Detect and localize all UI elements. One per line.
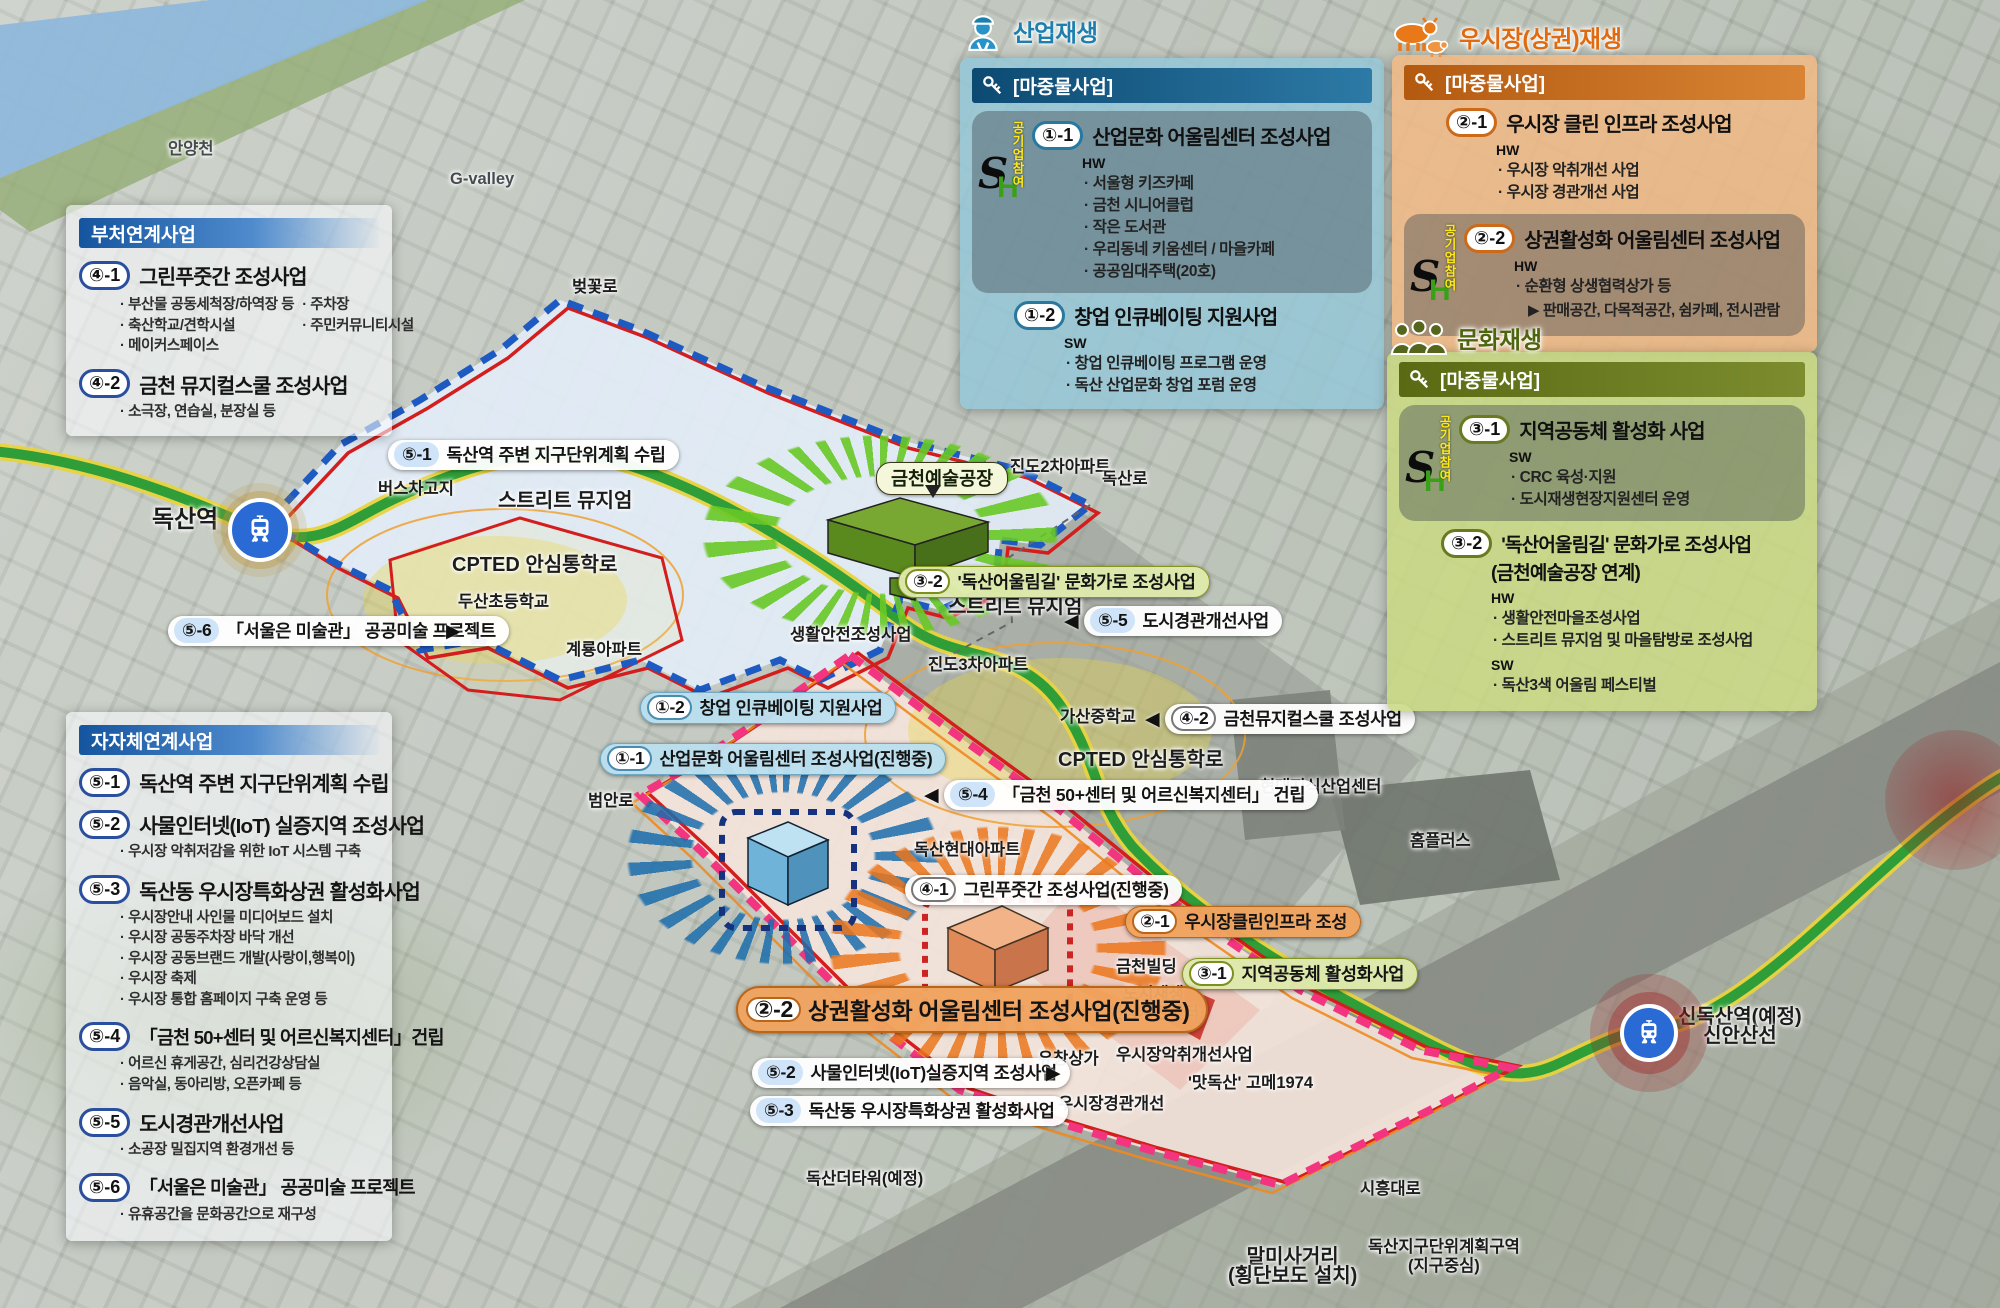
map-label-odor-project: 우시장악취개선사업 <box>1116 1046 1253 1065</box>
pill-badge: ⑤-4 <box>950 782 995 807</box>
pill-text: 그린푸줏간 조성사업(진행중) <box>963 877 1168 902</box>
panel-header: 자자체연계사업 <box>79 725 379 755</box>
pointer-left-icon: ◀ <box>1145 708 1160 731</box>
pill-badge: ④-2 <box>1171 706 1216 731</box>
bullet-list: 서울형 키즈카페 금천 시니어클럽 작은 도서관 우리동네 키움센터 / 마을카… <box>1084 173 1362 283</box>
bullet-list: 독산3색 어울림 페스티벌 <box>1493 675 1817 697</box>
map-label-road: 시흥대로 <box>1360 1180 1421 1199</box>
map-label-apartment-2: 진도2차아파트 <box>1010 458 1110 477</box>
local-gov-projects-panel: 자자체연계사업 ⑤-1독산역 주변 지구단위계획 수립 ⑤-2사물인터넷(IoT… <box>66 712 392 1241</box>
bullet: 우시장 통합 홈페이지 구축 운영 등 <box>120 990 392 1011</box>
sh-participation-logo: S H 공기업참여 <box>1409 413 1455 511</box>
project-badge: ①-1 <box>1032 121 1083 150</box>
sh-participation-label: 공기업참여 <box>1435 415 1454 483</box>
map-label-sindoksan-station: 신독산역(예정)신안산선 <box>1678 1008 1802 1046</box>
bullet-list: 우시장 악취개선 사업 우시장 경관개선 사업 <box>1498 160 1817 204</box>
bullet: 도시재생현장지원센터 운영 <box>1511 489 1795 511</box>
label-line1: 독산지구단위계획구역 <box>1368 1238 1520 1256</box>
seed-project-label: [마중물사업] <box>1440 366 1540 393</box>
section-title: 산업재생 <box>1013 14 1097 48</box>
section-title: 우시장(상권)재생 <box>1459 20 1622 54</box>
bullet: 우리동네 키움센터 / 마을카페 <box>1084 239 1362 261</box>
project-item: ⑤-1독산역 주변 지구단위계획 수립 <box>79 767 379 797</box>
map-pill-5-1: ⑤-1독산역 주변 지구단위계획 수립 <box>388 440 679 470</box>
map-label-crossing: 말미사거리(횡단보도 설치) <box>1228 1248 1357 1286</box>
project-item: ①-2 창업 인큐베이팅 지원사업 <box>1014 301 1384 330</box>
seed-project-bar: [마중물사업] <box>1404 65 1805 100</box>
project-badge: ⑤-2 <box>79 810 130 839</box>
bullet-list: 어르신 휴게공간, 심리건강상담실 음악실, 동아리방, 오픈카페 등 <box>120 1054 392 1095</box>
type-label: HW <box>1082 155 1362 171</box>
seed-project-label: [마중물사업] <box>1445 69 1545 96</box>
type-label: HW <box>1496 142 1817 158</box>
project-item: ⑤-3독산동 우시장특화상권 활성화사업 <box>79 875 379 905</box>
map-label-apartment-4: 독산현대아파트 <box>914 841 1020 860</box>
bullet: 창업 인큐베이팅 프로그램 운영 <box>1066 353 1384 375</box>
type-label: SW <box>1491 657 1817 673</box>
map-label-gvalley: G-valley <box>450 170 514 189</box>
pointer-left-icon: ◀ <box>1064 610 1079 633</box>
pill-text: 우시장클린인프라 조성 <box>1184 909 1347 934</box>
project-item: ④-1 그린푸줏간 조성사업 <box>79 260 379 290</box>
bullet-list: CRC 육성·지원 도시재생현장지원센터 운영 <box>1511 467 1795 511</box>
urban-regeneration-map: 안양천 G-valley 벚꽃로 버스차고지 스트리트 뮤지엄 CPTED 안심… <box>0 0 2000 1308</box>
train-icon <box>1634 1018 1664 1048</box>
project-item: ④-2 금천 뮤지컬스쿨 조성사업 <box>79 369 379 399</box>
sh-participation-label: 공기업참여 <box>1008 121 1027 189</box>
project-badge: ②-2 <box>1464 224 1515 253</box>
type-label: HW <box>1514 258 1795 274</box>
pill-text: 지역공동체 활성화사업 <box>1241 961 1404 986</box>
map-label-gourmet: '맛독산' 고메1974 <box>1188 1074 1313 1093</box>
label-line2: (횡단보도 설치) <box>1228 1267 1357 1286</box>
pill-text: 사물인터넷(IoT)실증지역 조성사업 <box>810 1060 1056 1085</box>
project-title: 창업 인큐베이팅 지원사업 <box>1074 301 1277 330</box>
industry-section-header: 산업재생 <box>962 10 1097 52</box>
project-title-line2: (금천예술공장 연계) <box>1491 558 1817 585</box>
key-icon <box>1409 369 1431 391</box>
pill-text: 창업 인큐베이팅 지원사업 <box>699 695 882 720</box>
map-label-building: 금천빌딩 <box>1116 958 1177 977</box>
bullet-list: 우시장 악취저감을 위한 IoT 시스템 구축 <box>120 842 392 863</box>
bullet-list: 소공장 밀집지역 환경개선 등 <box>120 1140 392 1161</box>
project-title: 독산역 주변 지구단위계획 수립 <box>139 767 388 797</box>
map-pill-1-2: ①-2창업 인큐베이팅 지원사업 <box>640 692 896 724</box>
map-label-school-1: 두산초등학교 <box>458 593 549 612</box>
project-title: '독산어울림길' 문화가로 조성사업 <box>1501 530 1751 557</box>
map-label-landscape: 우시장경관개선 <box>1058 1095 1164 1114</box>
type-label: HW <box>1491 590 1817 606</box>
industry-center-building <box>748 822 828 905</box>
project-item: ①-1 산업문화 어울림센터 조성사업 <box>1032 121 1362 150</box>
map-label-school-2: 가산중학교 <box>1060 708 1136 727</box>
bullet: CRC 육성·지원 <box>1511 467 1795 489</box>
map-pill-2-1: ②-1우시장클린인프라 조성 <box>1125 906 1361 938</box>
worker-icon <box>962 10 1004 52</box>
map-label-doksan-station: 독산역 <box>152 510 218 529</box>
bullet: 소공장 밀집지역 환경개선 등 <box>120 1140 392 1161</box>
project-title: 독산동 우시장특화상권 활성화사업 <box>139 875 420 905</box>
project-item: ⑤-6「서울은 미술관」 공공미술 프로젝트 <box>79 1173 379 1202</box>
map-label-road: 범안로 <box>588 792 634 811</box>
project-badge: ③-1 <box>1459 415 1510 444</box>
project-title: 상권활성화 어울림센터 조성사업 <box>1524 224 1780 253</box>
doksan-station-marker <box>228 498 292 562</box>
project-box: S H 공기업참여 ②-2 상권활성화 어울림센터 조성사업 HW 순환형 상생… <box>1404 214 1805 336</box>
map-label-homeplus: 홈플러스 <box>1410 832 1471 851</box>
panel-header: 부처연계사업 <box>79 218 379 248</box>
pill-badge: ②-2 <box>746 997 801 1022</box>
bullet: 음악실, 동아리방, 오픈카페 등 <box>120 1075 392 1096</box>
seed-project-bar: [마중물사업] <box>1399 362 1805 397</box>
bullet: 부산물 공동세척장/하역장 등 <box>120 295 294 316</box>
community-icon <box>1390 320 1448 356</box>
project-box: S H 공기업참여 ③-1 지역공동체 활성화 사업 SW CRC 육성·지원 … <box>1399 405 1805 521</box>
label-line2: 신안산선 <box>1678 1027 1802 1046</box>
sindoksan-station-marker <box>1620 1004 1678 1062</box>
project-badge: ②-1 <box>1446 108 1497 137</box>
map-label-cpted-1: CPTED 안심통학로 <box>452 556 617 575</box>
bullet: 어르신 휴게공간, 심리건강상담실 <box>120 1054 392 1075</box>
pointer-right-icon: ▶ <box>446 620 461 643</box>
project-title: 「서울은 미술관」 공공미술 프로젝트 <box>139 1174 415 1200</box>
bullet: 소극장, 연습실, 분장실 등 <box>120 402 392 423</box>
seed-project-label: [마중물사업] <box>1013 72 1113 99</box>
pill-text: 도시경관개선사업 <box>1142 608 1268 633</box>
map-pill-4-1: ④-1그린푸줏간 조성사업(진행중) <box>905 875 1182 905</box>
map-pill-3-1: ③-1지역공동체 활성화사업 <box>1182 958 1418 990</box>
pill-badge: ②-1 <box>1132 909 1177 934</box>
project-title: 산업문화 어울림센터 조성사업 <box>1092 121 1330 150</box>
pill-text: 「금천 50+센터 및 어르신복지센터」 건립 <box>1002 782 1305 807</box>
project-badge: ⑤-6 <box>79 1173 130 1202</box>
project-badge: ③-2 <box>1441 529 1492 558</box>
market-panel: [마중물사업] ②-1 우시장 클린 인프라 조성사업 HW 우시장 악취개선 … <box>1392 55 1817 352</box>
map-label-road: 독산로 <box>1102 470 1148 489</box>
bullet: 유휴공간을 문화공간으로 재구성 <box>120 1205 392 1226</box>
map-pill-5-2: ⑤-2사물인터넷(IoT)실증지역 조성사업 <box>752 1058 1070 1088</box>
bullet-list: 주차장 주민커뮤니티시설 <box>302 295 414 357</box>
project-title: 「금천 50+센터 및 어르신복지센터」건립 <box>139 1024 443 1050</box>
bullet: 독산3색 어울림 페스티벌 <box>1493 675 1817 697</box>
pill-badge: ①-1 <box>607 746 652 771</box>
map-pill-2-2: ②-2상권활성화 어울림센터 조성사업(진행중) <box>736 986 1208 1033</box>
bullet: 메이커스페이스 <box>120 336 294 357</box>
sh-participation-logo: S H 공기업참여 <box>1414 222 1460 326</box>
project-item: ③-2 '독산어울림길' 문화가로 조성사업 <box>1441 529 1817 558</box>
map-pill-5-4: ⑤-4「금천 50+센터 및 어르신복지센터」 건립 <box>944 780 1318 810</box>
bullet: 우시장 축제 <box>120 969 392 990</box>
pill-badge: ③-1 <box>1189 961 1234 986</box>
map-label-tower: 독산더타워(예정) <box>806 1170 923 1189</box>
project-badge: ⑤-3 <box>79 875 130 904</box>
market-center-building <box>948 906 1048 992</box>
market-section-header: 우시장(상권)재생 <box>1388 16 1622 58</box>
project-badge: ⑤-4 <box>79 1022 130 1051</box>
project-item: ③-1 지역공동체 활성화 사업 <box>1459 415 1795 444</box>
project-title: 금천 뮤지컬스쿨 조성사업 <box>139 369 347 399</box>
project-title: 지역공동체 활성화 사업 <box>1519 415 1705 444</box>
pill-badge: ⑤-5 <box>1090 608 1135 633</box>
seed-project-bar: [마중물사업] <box>972 68 1372 103</box>
key-icon <box>1414 72 1436 94</box>
bullet-list: 우시장안내 사인물 미디어보드 설치 우시장 공동주차장 바닥 개선 우시장 공… <box>120 908 392 1011</box>
project-title: 도시경관개선사업 <box>139 1107 283 1137</box>
map-label-river: 안양천 <box>168 140 214 159</box>
industry-panel: [마중물사업] S H 공기업참여 ①-1 산업문화 어울림센터 조성사업 HW… <box>960 58 1384 409</box>
map-label-safety-project: 생활안전조성사업 <box>790 626 911 645</box>
project-item: ⑤-2사물인터넷(IoT) 실증지역 조성사업 <box>79 809 379 839</box>
map-pill-4-2: ④-2금천뮤지컬스쿨 조성사업 <box>1165 704 1415 734</box>
pill-badge: ⑤-3 <box>756 1098 801 1123</box>
pill-text: 금천뮤지컬스쿨 조성사업 <box>1223 706 1401 731</box>
sh-participation-label: 공기업참여 <box>1440 224 1459 292</box>
sh-participation-logo: S H 공기업참여 <box>982 119 1028 283</box>
pointer-left-icon: ◀ <box>924 784 939 807</box>
bullet: 주민커뮤니티시설 <box>302 316 414 337</box>
pill-badge: ③-2 <box>905 569 950 594</box>
project-item: ⑤-4「금천 50+센터 및 어르신복지센터」건립 <box>79 1022 379 1051</box>
bullet: 우시장안내 사인물 미디어보드 설치 <box>120 908 392 929</box>
pill-text: 상권활성화 어울림센터 조성사업(진행중) <box>808 992 1190 1026</box>
train-icon <box>243 513 277 547</box>
map-pill-3-2: ③-2'독산어울림길' 문화가로 조성사업 <box>898 566 1210 598</box>
project-badge: ④-1 <box>79 261 130 290</box>
map-pill-5-5: ⑤-5도시경관개선사업 <box>1084 606 1282 636</box>
project-badge: ⑤-5 <box>79 1108 130 1137</box>
pill-badge: ④-1 <box>911 877 956 902</box>
bullet: 우시장 악취개선 사업 <box>1498 160 1817 182</box>
bullet: 서울형 키즈카페 <box>1084 173 1362 195</box>
map-label-road: 벚꽃로 <box>572 278 618 297</box>
bullet: 금천 시니어클럽 <box>1084 195 1362 217</box>
map-label-district-unit: 독산지구단위계획구역(지구중심) <box>1368 1238 1520 1276</box>
bullet: 우시장 악취저감을 위한 IoT 시스템 구축 <box>120 842 392 863</box>
pill-text: 산업문화 어울림센터 조성사업(진행중) <box>659 746 932 771</box>
map-pill-1-1: ①-1산업문화 어울림센터 조성사업(진행중) <box>600 743 946 775</box>
bullet-list: 창업 인큐베이팅 프로그램 운영 독산 산업문화 창업 포럼 운영 <box>1066 353 1384 397</box>
note: ▶ 판매공간, 다목적공간, 쉼카페, 전시관람 <box>1528 299 1795 320</box>
type-label: SW <box>1509 449 1795 465</box>
bullet: 생활안전마을조성사업 <box>1493 608 1817 630</box>
project-title: 그린푸줏간 조성사업 <box>139 260 306 290</box>
section-title: 문화재생 <box>1457 321 1541 355</box>
ministry-projects-panel: 부처연계사업 ④-1 그린푸줏간 조성사업 부산물 공동세척장/하역장 등 축산… <box>66 205 392 436</box>
arts-factory-bubble: 금천예술공장 <box>876 462 1008 495</box>
bullet-list: 생활안전마을조성사업 스트리트 뮤지엄 및 마을탐방로 조성사업 <box>1493 608 1817 652</box>
bullet: 스트리트 뮤지엄 및 마을탐방로 조성사업 <box>1493 630 1817 652</box>
culture-panel: [마중물사업] S H 공기업참여 ③-1 지역공동체 활성화 사업 SW CR… <box>1387 352 1817 711</box>
project-badge: ①-2 <box>1014 301 1065 330</box>
bullet: 축산학교/견학시설 <box>120 316 294 337</box>
bullet: 작은 도서관 <box>1084 217 1362 239</box>
project-item: ②-1 우시장 클린 인프라 조성사업 <box>1446 108 1817 137</box>
project-title: 우시장 클린 인프라 조성사업 <box>1506 108 1731 137</box>
project-box: S H 공기업참여 ①-1 산업문화 어울림센터 조성사업 HW 서울형 키즈카… <box>972 111 1372 293</box>
pill-text: 독산역 주변 지구단위계획 수립 <box>446 442 665 467</box>
bullet-list: 유휴공간을 문화공간으로 재구성 <box>120 1205 392 1226</box>
map-label-street-museum-1: 스트리트 뮤지엄 <box>498 492 632 511</box>
project-badge: ⑤-1 <box>79 768 130 797</box>
bullet: 우시장 경관개선 사업 <box>1498 182 1817 204</box>
bullet-list: 순환형 상생협력상가 등 <box>1516 276 1795 298</box>
pill-text: 독산동 우시장특화상권 활성화사업 <box>808 1098 1054 1123</box>
map-label-apartment-1: 계룡아파트 <box>566 641 642 660</box>
bullet: 우시장 공동브랜드 개발(사랑이,행복이) <box>120 949 392 970</box>
pill-badge: ⑤-6 <box>174 618 219 643</box>
label-line2: (지구중심) <box>1368 1257 1520 1276</box>
project-item: ⑤-5도시경관개선사업 <box>79 1107 379 1137</box>
pill-badge: ⑤-1 <box>394 442 439 467</box>
map-label-street-museum-2: 스트리트 뮤지엄 <box>948 598 1082 617</box>
pill-badge: ⑤-2 <box>758 1060 803 1085</box>
bullet: 순환형 상생협력상가 등 <box>1516 276 1795 298</box>
culture-section-header: 문화재생 <box>1390 320 1541 356</box>
bullet: 공공임대주택(20호) <box>1084 261 1362 283</box>
livestock-icon <box>1388 16 1450 58</box>
bullet-list: 부산물 공동세척장/하역장 등 축산학교/견학시설 메이커스페이스 <box>120 295 294 357</box>
pill-text: '독산어울림길' 문화가로 조성사업 <box>957 569 1195 594</box>
project-item: ②-2 상권활성화 어울림센터 조성사업 <box>1464 224 1795 253</box>
key-icon <box>982 75 1004 97</box>
type-label: SW <box>1064 335 1384 351</box>
bullet: 우시장 공동주차장 바닥 개선 <box>120 928 392 949</box>
project-badge: ④-2 <box>79 369 130 398</box>
bullet: 주차장 <box>302 295 414 316</box>
map-label-cpted-2: CPTED 안심통학로 <box>1058 751 1223 770</box>
bullet-list: 소극장, 연습실, 분장실 등 <box>120 402 392 423</box>
map-label-bus-depot: 버스차고지 <box>378 480 454 499</box>
bullet: 독산 산업문화 창업 포럼 운영 <box>1066 375 1384 397</box>
project-title: 사물인터넷(IoT) 실증지역 조성사업 <box>139 809 424 839</box>
pill-badge: ①-2 <box>647 695 692 720</box>
pointer-right-icon: ▶ <box>1046 1062 1061 1085</box>
map-pill-5-3: ⑤-3독산동 우시장특화상권 활성화사업 <box>750 1096 1068 1126</box>
map-label-apartment-3: 진도3차아파트 <box>928 656 1028 675</box>
